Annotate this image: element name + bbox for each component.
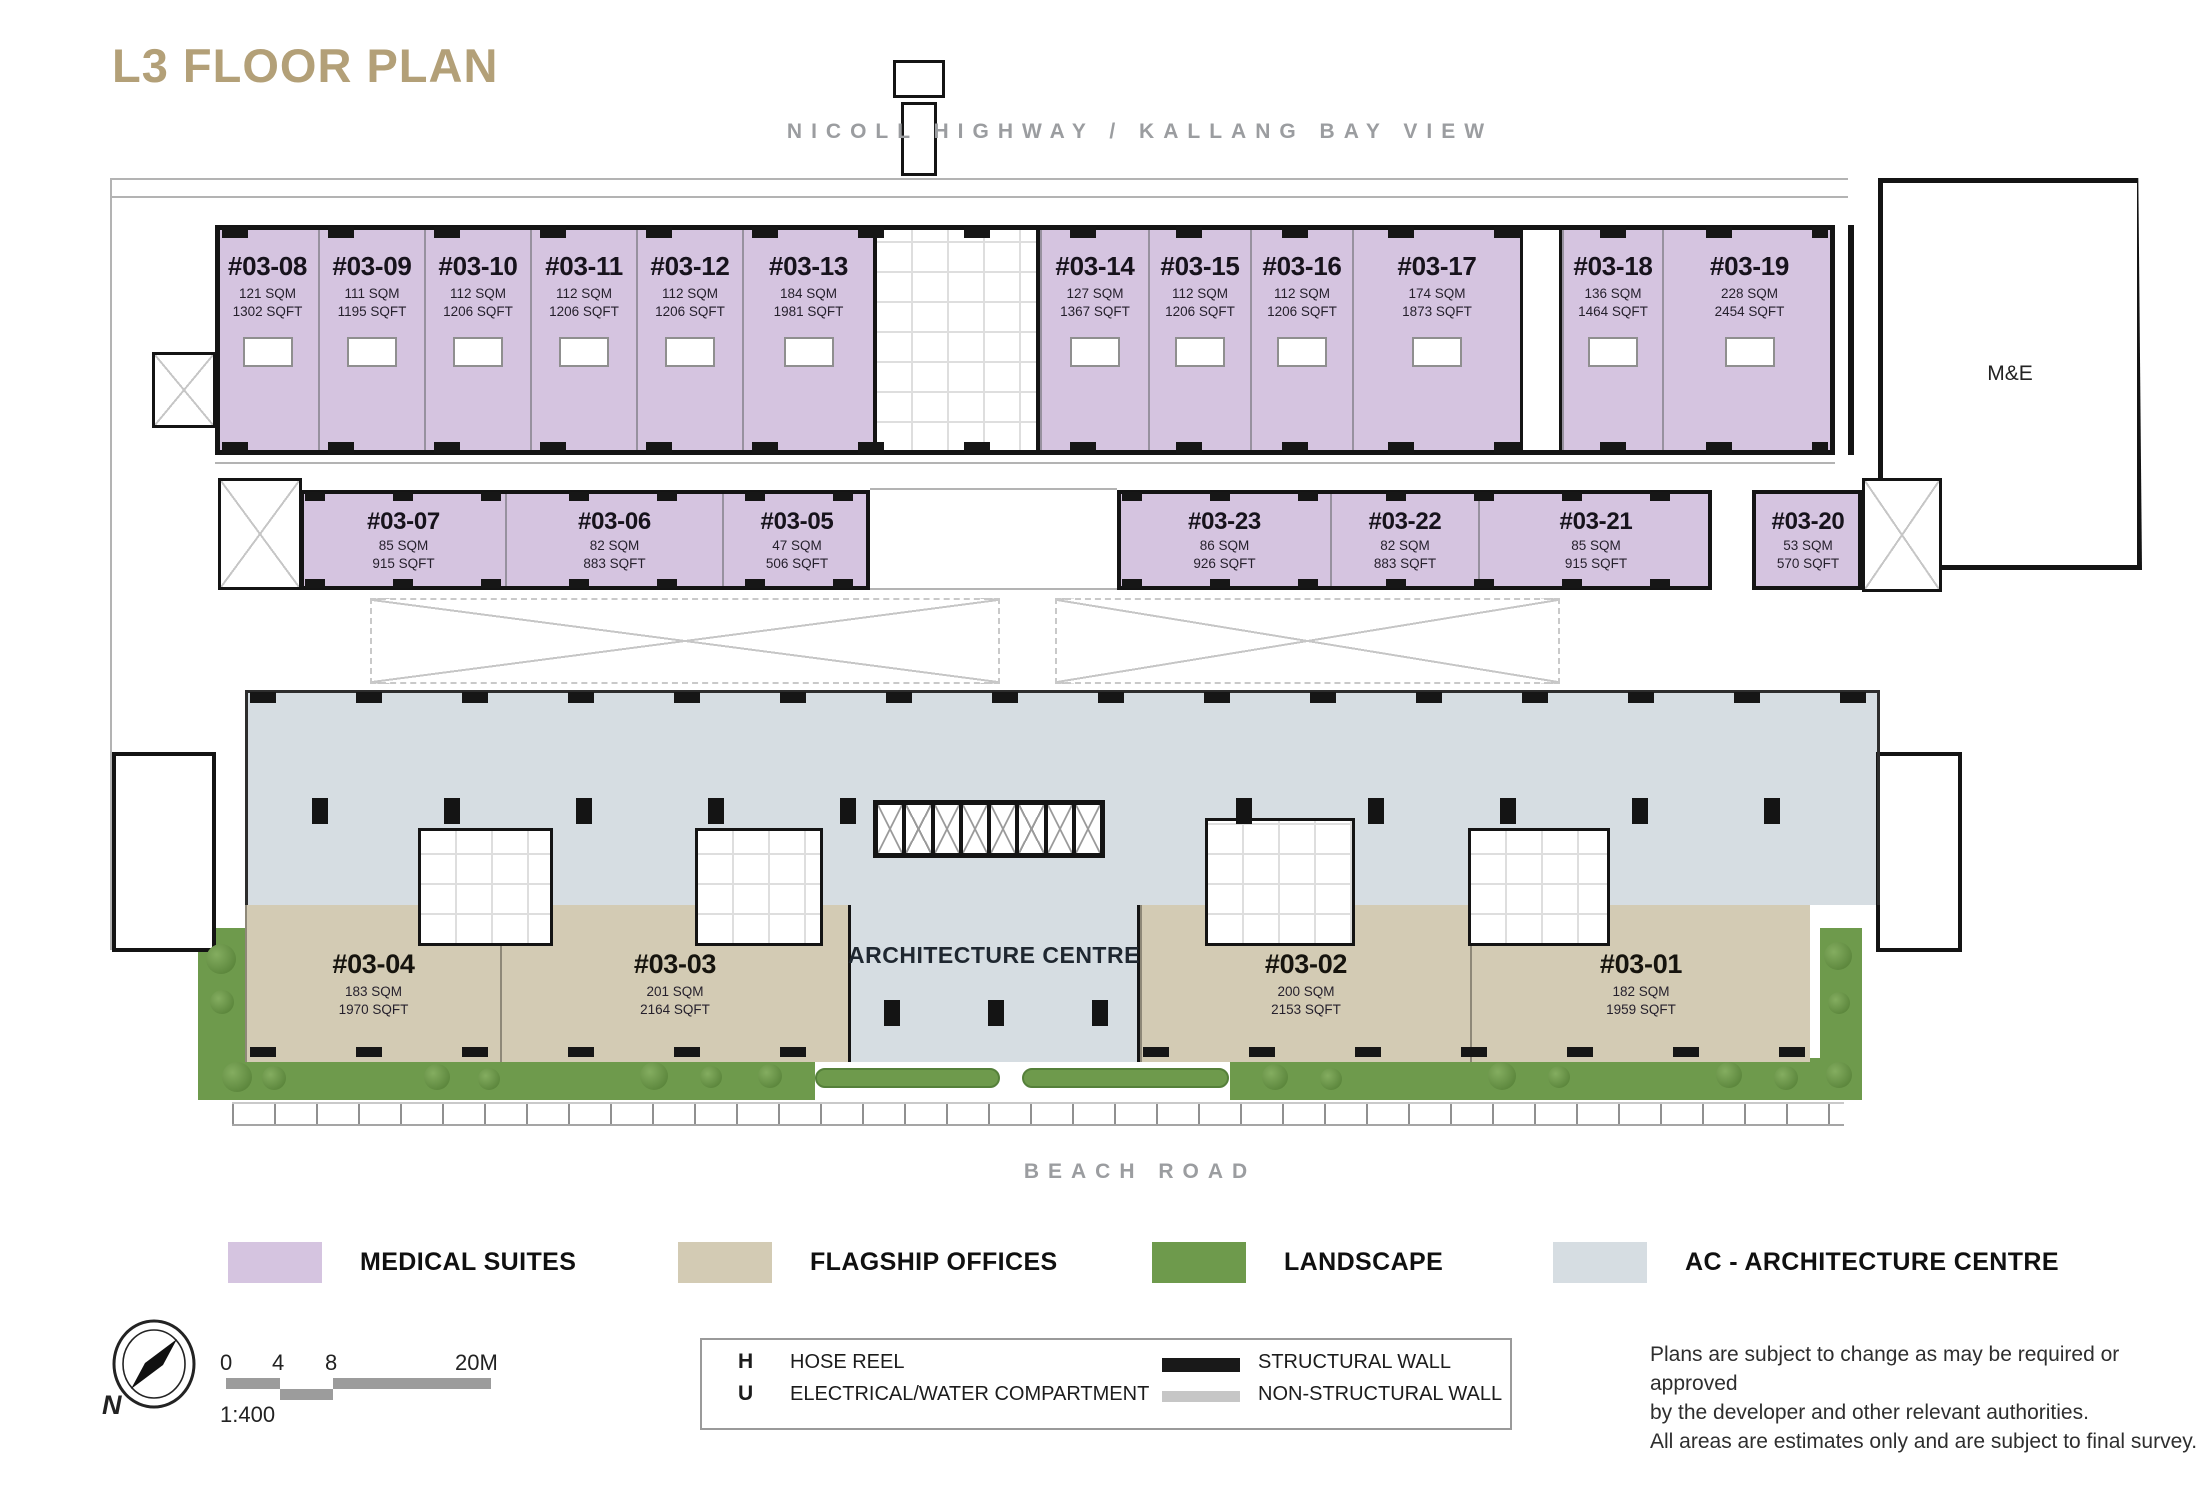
lift-cell xyxy=(1076,805,1100,853)
floor-plan-page: L3 FLOOR PLAN NICOLL HIGHWAY / KALLANG B… xyxy=(0,0,2211,1488)
structural-columns-strip xyxy=(222,227,1828,238)
corridor-line xyxy=(870,588,1117,590)
unit-area-sqm: 184 SQM xyxy=(780,285,837,303)
unit-area-sqft: 1206 SQFT xyxy=(443,303,513,321)
unit-area-sqm: 47 SQM xyxy=(772,537,822,555)
symbol-h: H xyxy=(738,1350,753,1374)
unit-area-sqft: 1970 SQFT xyxy=(339,1001,409,1019)
unit-03-11: #03-11112 SQM1206 SQFT xyxy=(530,225,636,455)
unit-03-18: #03-18136 SQM1464 SQFT xyxy=(1562,225,1662,455)
structural-columns-strip xyxy=(250,692,1875,703)
unit-area-sqm: 112 SQM xyxy=(450,285,506,303)
unit-area-sqft: 2153 SQFT xyxy=(1271,1001,1341,1019)
unit-area-sqft: 1367 SQFT xyxy=(1060,303,1130,321)
unit-03-12: #03-12112 SQM1206 SQFT xyxy=(636,225,742,455)
unit-area-sqft: 1464 SQFT xyxy=(1578,303,1648,321)
structural-column xyxy=(576,798,592,824)
unit-area-sqm: 201 SQM xyxy=(646,983,703,1001)
legend-item-ac: AC - ARCHITECTURE CENTRE xyxy=(1553,1242,2059,1283)
structural-column xyxy=(1632,798,1648,824)
unit-area-sqm: 86 SQM xyxy=(1200,537,1250,555)
unit-number: #03-11 xyxy=(545,251,623,282)
disclaimer: Plans are subject to change as may be re… xyxy=(1650,1340,2211,1456)
unit-03-15: #03-15112 SQM1206 SQFT xyxy=(1148,225,1250,455)
toilet-pod xyxy=(243,337,293,367)
unit-number: #03-14 xyxy=(1055,251,1134,282)
unit-area-sqm: 82 SQM xyxy=(590,537,640,555)
unit-area-sqft: 1206 SQFT xyxy=(549,303,619,321)
legend-item-landscape: LANDSCAPE xyxy=(1152,1242,1443,1283)
legend-label: AC - ARCHITECTURE CENTRE xyxy=(1685,1248,2059,1277)
toilet-pod xyxy=(784,337,834,367)
toilet-pod xyxy=(1412,337,1462,367)
unit-03-09: #03-09111 SQM1195 SQFT xyxy=(318,225,424,455)
disclaimer-line: by the developer and other relevant auth… xyxy=(1650,1398,2211,1427)
unit-area-sqm: 174 SQM xyxy=(1408,285,1465,303)
roof-shaft xyxy=(893,60,945,98)
unit-area-sqft: 883 SQFT xyxy=(583,555,645,573)
compass-north-label: N xyxy=(102,1390,122,1421)
scale-bar-segment xyxy=(333,1378,491,1389)
unit-area-sqft: 570 SQFT xyxy=(1777,555,1839,573)
lift-bank xyxy=(873,800,1105,858)
unit-area-sqm: 183 SQM xyxy=(345,983,402,1001)
unit-area-sqm: 112 SQM xyxy=(1274,285,1330,303)
tree-icon xyxy=(1824,942,1852,970)
unit-area-sqm: 85 SQM xyxy=(379,537,429,555)
structural-column xyxy=(312,798,328,824)
unit-area-sqft: 2164 SQFT xyxy=(640,1001,710,1019)
lift-cell xyxy=(935,805,959,853)
tree-icon xyxy=(1262,1064,1288,1090)
unit-area-sqm: 228 SQM xyxy=(1721,285,1778,303)
unit-area-sqm: 200 SQM xyxy=(1277,983,1334,1001)
unit-number: #03-19 xyxy=(1710,251,1789,282)
unit-03-05: #03-0547 SQM506 SQFT xyxy=(722,490,870,590)
legend-swatch-landscape xyxy=(1152,1242,1246,1283)
toilet-pod xyxy=(1070,337,1120,367)
facade-line xyxy=(112,178,1848,180)
stair-core xyxy=(152,352,216,428)
tree-icon xyxy=(1716,1062,1742,1088)
scale-bar-segment xyxy=(226,1378,280,1389)
stair-core xyxy=(218,478,302,590)
unit-area-sqm: 85 SQM xyxy=(1571,537,1621,555)
tree-icon xyxy=(640,1062,668,1090)
structural-column xyxy=(1764,798,1780,824)
structural-wall-label: STRUCTURAL WALL xyxy=(1258,1351,1451,1374)
unit-number: #03-18 xyxy=(1573,251,1652,282)
unit-area-sqm: 112 SQM xyxy=(662,285,718,303)
lift-cell xyxy=(1048,805,1072,853)
lift-cell xyxy=(1019,805,1043,853)
tree-icon xyxy=(262,1066,286,1090)
unit-03-19: #03-19228 SQM2454 SQFT xyxy=(1662,225,1835,455)
unit-area-sqm: 53 SQM xyxy=(1783,537,1833,555)
structural-column xyxy=(1368,798,1384,824)
structural-wall-swatch xyxy=(1162,1358,1240,1372)
service-core xyxy=(418,828,553,946)
scale-tick-8: 8 xyxy=(325,1350,337,1376)
lift-cell xyxy=(991,805,1015,853)
unit-number: #03-01 xyxy=(1600,949,1682,980)
scale-tick-0: 0 xyxy=(220,1350,232,1376)
unit-area-sqm: 111 SQM xyxy=(344,285,399,303)
unit-number: #03-12 xyxy=(650,251,729,282)
structural-columns-strip xyxy=(1122,492,1707,501)
unit-number: #03-13 xyxy=(769,251,848,282)
unit-03-14: #03-14127 SQM1367 SQFT xyxy=(1040,225,1148,455)
unit-area-sqft: 1959 SQFT xyxy=(1606,1001,1676,1019)
structural-columns-strip xyxy=(1122,579,1707,588)
unit-number: #03-15 xyxy=(1160,251,1239,282)
legend-item-offices: FLAGSHIP OFFICES xyxy=(678,1242,1058,1283)
unit-number: #03-21 xyxy=(1560,508,1633,536)
tree-icon xyxy=(210,990,234,1014)
unit-area-sqft: 926 SQFT xyxy=(1193,555,1255,573)
unit-area-sqm: 127 SQM xyxy=(1066,285,1123,303)
unit-03-22: #03-2282 SQM883 SQFT xyxy=(1330,490,1478,590)
tree-icon xyxy=(1774,1066,1798,1090)
legend-swatch-ac xyxy=(1553,1242,1647,1283)
unit-number: #03-03 xyxy=(634,949,716,980)
service-core xyxy=(873,225,1040,455)
lift-cell xyxy=(963,805,987,853)
service-core xyxy=(1468,828,1610,946)
unit-number: #03-02 xyxy=(1265,949,1347,980)
walkway-colonnade xyxy=(232,1102,1844,1126)
unit-area-sqft: 1302 SQFT xyxy=(233,303,303,321)
unit-number: #03-17 xyxy=(1397,251,1476,282)
unit-number: #03-09 xyxy=(332,251,411,282)
symbol-u-label: ELECTRICAL/WATER COMPARTMENT xyxy=(790,1383,1149,1406)
scale-bar-segment xyxy=(280,1389,333,1400)
toilet-pod xyxy=(347,337,397,367)
service-core xyxy=(1520,225,1562,455)
toilet-pod xyxy=(559,337,609,367)
unit-number: #03-05 xyxy=(761,508,834,536)
scale-ratio: 1:400 xyxy=(220,1402,275,1428)
toilet-pod xyxy=(453,337,503,367)
toilet-pod xyxy=(665,337,715,367)
tree-icon xyxy=(1488,1062,1516,1090)
unit-area-sqft: 1981 SQFT xyxy=(774,303,844,321)
structural-columns-strip xyxy=(305,492,865,501)
legend-label: FLAGSHIP OFFICES xyxy=(810,1248,1058,1277)
toilet-pod xyxy=(1725,337,1775,367)
end-core-west xyxy=(112,752,216,952)
corridor-line xyxy=(870,488,1117,490)
unit-area-sqft: 506 SQFT xyxy=(766,555,828,573)
service-core xyxy=(695,828,823,946)
disclaimer-line: Plans are subject to change as may be re… xyxy=(1650,1340,2211,1398)
toilet-pod xyxy=(1277,337,1327,367)
unit-number: #03-22 xyxy=(1369,508,1442,536)
unit-03-20: #03-2053 SQM570 SQFT xyxy=(1752,490,1862,590)
structural-column xyxy=(1236,798,1252,824)
unit-03-07: #03-0785 SQM915 SQFT xyxy=(300,490,505,590)
service-core xyxy=(1205,818,1355,946)
tree-icon xyxy=(1548,1066,1570,1088)
non-structural-wall-label: NON-STRUCTURAL WALL xyxy=(1258,1383,1502,1406)
unit-area-sqft: 1206 SQFT xyxy=(1267,303,1337,321)
unit-area-sqft: 883 SQFT xyxy=(1374,555,1436,573)
end-core-east xyxy=(1876,752,1962,952)
symbol-h-label: HOSE REEL xyxy=(790,1351,904,1374)
structural-columns-strip xyxy=(222,442,1828,453)
unit-area-sqm: 112 SQM xyxy=(556,285,612,303)
tree-icon xyxy=(222,1062,252,1092)
unit-03-13: #03-13184 SQM1981 SQFT xyxy=(742,225,873,455)
planter xyxy=(815,1068,1000,1088)
unit-03-17: #03-17174 SQM1873 SQFT xyxy=(1352,225,1520,455)
unit-area-sqft: 1206 SQFT xyxy=(655,303,725,321)
void-above xyxy=(370,598,1000,684)
landscape-lawn-left xyxy=(198,1058,815,1100)
structural-column xyxy=(840,798,856,824)
non-structural-wall-swatch xyxy=(1162,1391,1240,1402)
tree-icon xyxy=(700,1066,722,1088)
architecture-centre-label: ARCHITECTURE CENTRE xyxy=(848,905,1140,1005)
tree-icon xyxy=(758,1064,782,1088)
unit-area-sqft: 915 SQFT xyxy=(372,555,434,573)
tree-icon xyxy=(1826,1062,1852,1088)
unit-number: #03-07 xyxy=(367,508,440,536)
lift-cell xyxy=(878,805,902,853)
structural-column xyxy=(444,798,460,824)
unit-area-sqft: 1206 SQFT xyxy=(1165,303,1235,321)
corridor-line xyxy=(215,462,1835,464)
planter xyxy=(1022,1068,1229,1088)
void-above xyxy=(1055,598,1560,684)
unit-number: #03-20 xyxy=(1772,508,1845,536)
unit-number: #03-04 xyxy=(332,949,414,980)
unit-number: #03-06 xyxy=(578,508,651,536)
me-room-label: M&E xyxy=(1878,178,2142,570)
unit-area-sqm: 182 SQM xyxy=(1612,983,1669,1001)
road-label-top: NICOLL HIGHWAY / KALLANG BAY VIEW xyxy=(660,120,1620,144)
tree-icon xyxy=(206,944,236,974)
legend-label: LANDSCAPE xyxy=(1284,1248,1443,1277)
legend-item-medical: MEDICAL SUITES xyxy=(228,1242,576,1283)
unit-area-sqft: 2454 SQFT xyxy=(1715,303,1785,321)
unit-area-sqm: 112 SQM xyxy=(1172,285,1228,303)
unit-03-21: #03-2185 SQM915 SQFT xyxy=(1478,490,1712,590)
unit-number: #03-10 xyxy=(438,251,517,282)
legend-label: MEDICAL SUITES xyxy=(360,1248,576,1277)
tree-icon xyxy=(478,1068,500,1090)
unit-03-10: #03-10112 SQM1206 SQFT xyxy=(424,225,530,455)
unit-number: #03-16 xyxy=(1262,251,1341,282)
party-wall xyxy=(1848,225,1854,455)
disclaimer-line: All areas are estimates only and are sub… xyxy=(1650,1427,2211,1456)
tree-icon xyxy=(1320,1068,1342,1090)
unit-03-08: #03-08121 SQM1302 SQFT xyxy=(215,225,318,455)
unit-area-sqm: 121 SQM xyxy=(239,285,296,303)
legend-swatch-offices xyxy=(678,1242,772,1283)
unit-number: #03-08 xyxy=(228,251,307,282)
unit-03-16: #03-16112 SQM1206 SQFT xyxy=(1250,225,1352,455)
symbol-u: U xyxy=(738,1382,753,1406)
structural-columns-strip xyxy=(305,579,865,588)
structural-columns-strip xyxy=(1143,1047,1807,1057)
legend-swatch-medical xyxy=(228,1242,322,1283)
unit-03-23: #03-2386 SQM926 SQFT xyxy=(1117,490,1330,590)
unit-area-sqft: 1873 SQFT xyxy=(1402,303,1472,321)
facade-line xyxy=(112,196,1848,198)
tree-icon xyxy=(1828,992,1850,1014)
structural-column xyxy=(708,798,724,824)
toilet-pod xyxy=(1588,337,1638,367)
unit-area-sqm: 82 SQM xyxy=(1380,537,1430,555)
unit-area-sqm: 136 SQM xyxy=(1584,285,1641,303)
structural-column xyxy=(1500,798,1516,824)
toilet-pod xyxy=(1175,337,1225,367)
road-label-bottom: BEACH ROAD xyxy=(660,1160,1620,1184)
unit-number: #03-23 xyxy=(1188,508,1261,536)
unit-area-sqft: 915 SQFT xyxy=(1565,555,1627,573)
unit-area-sqft: 1195 SQFT xyxy=(338,303,407,321)
unit-03-06: #03-0682 SQM883 SQFT xyxy=(505,490,722,590)
scale-tick-4: 4 xyxy=(272,1350,284,1376)
scale-tick-20m: 20M xyxy=(455,1350,498,1376)
lift-cell xyxy=(906,805,930,853)
structural-columns-strip xyxy=(250,1047,845,1057)
tree-icon xyxy=(424,1064,450,1090)
